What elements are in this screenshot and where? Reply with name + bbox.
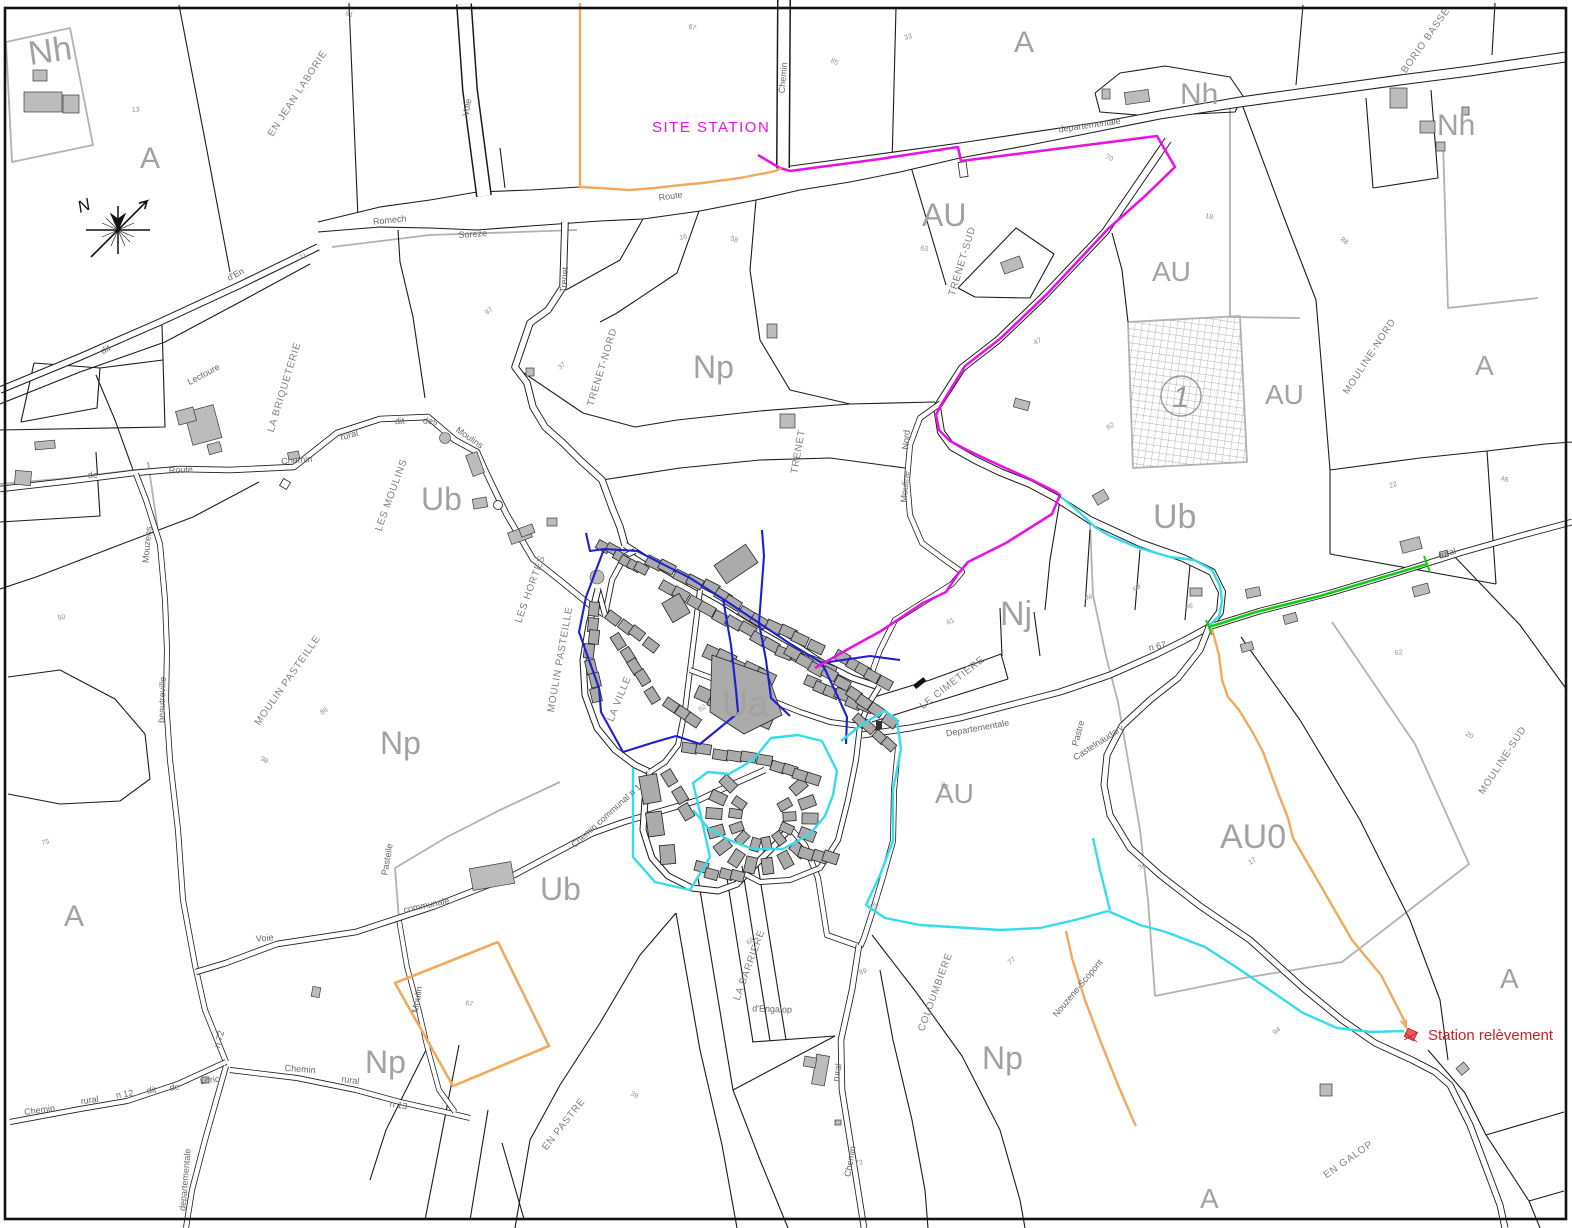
svg-text:des: des xyxy=(423,415,439,426)
svg-text:A: A xyxy=(140,142,160,175)
svg-text:AU: AU xyxy=(1152,256,1191,287)
svg-text:50: 50 xyxy=(57,614,66,622)
svg-text:de: de xyxy=(169,1081,180,1092)
svg-text:Nh: Nh xyxy=(1180,78,1218,111)
svg-text:Nord: Nord xyxy=(900,430,912,450)
svg-text:62: 62 xyxy=(1395,649,1403,657)
svg-text:A: A xyxy=(1500,963,1519,994)
svg-text:86: 86 xyxy=(1084,594,1093,602)
svg-text:13: 13 xyxy=(132,106,140,114)
svg-text:d'Engalop: d'Engalop xyxy=(752,1003,792,1014)
svg-text:Np: Np xyxy=(982,1040,1023,1076)
svg-text:Station relèvement: Station relèvement xyxy=(1428,1027,1554,1044)
svg-text:AU0: AU0 xyxy=(1220,818,1286,856)
svg-text:dit: dit xyxy=(395,416,406,427)
svg-text:75: 75 xyxy=(41,839,50,847)
svg-text:73: 73 xyxy=(855,1160,863,1167)
svg-text:de: de xyxy=(88,470,99,481)
svg-text:Route: Route xyxy=(169,464,194,475)
svg-text:A: A xyxy=(1014,26,1034,59)
svg-text:SITE STATION: SITE STATION xyxy=(652,119,770,136)
svg-text:AU: AU xyxy=(922,197,966,233)
svg-text:63: 63 xyxy=(920,245,929,253)
svg-text:Nh: Nh xyxy=(1437,109,1475,142)
svg-text:Soreze: Soreze xyxy=(458,228,487,240)
svg-text:Ub: Ub xyxy=(540,871,581,907)
svg-text:A: A xyxy=(1200,1183,1219,1214)
svg-text:1: 1 xyxy=(1173,381,1190,414)
svg-text:Np: Np xyxy=(693,349,734,385)
svg-text:66: 66 xyxy=(1185,603,1193,610)
svg-text:beautreville: beautreville xyxy=(156,677,168,723)
svg-text:A: A xyxy=(64,900,84,933)
svg-text:Nj: Nj xyxy=(1000,595,1032,633)
svg-text:Ub: Ub xyxy=(421,481,462,517)
svg-text:Voie: Voie xyxy=(255,932,273,944)
svg-text:dit: dit xyxy=(146,1084,157,1095)
svg-text:Ub: Ub xyxy=(1153,498,1196,536)
svg-text:A: A xyxy=(1475,350,1494,381)
svg-text:Np: Np xyxy=(380,725,421,761)
svg-text:Nh: Nh xyxy=(26,29,74,73)
svg-text:67: 67 xyxy=(465,1000,474,1008)
svg-text:Ua: Ua xyxy=(722,683,769,724)
svg-text:AU: AU xyxy=(1265,379,1304,410)
svg-text:18: 18 xyxy=(1205,213,1214,221)
svg-text:Np: Np xyxy=(365,1044,406,1080)
